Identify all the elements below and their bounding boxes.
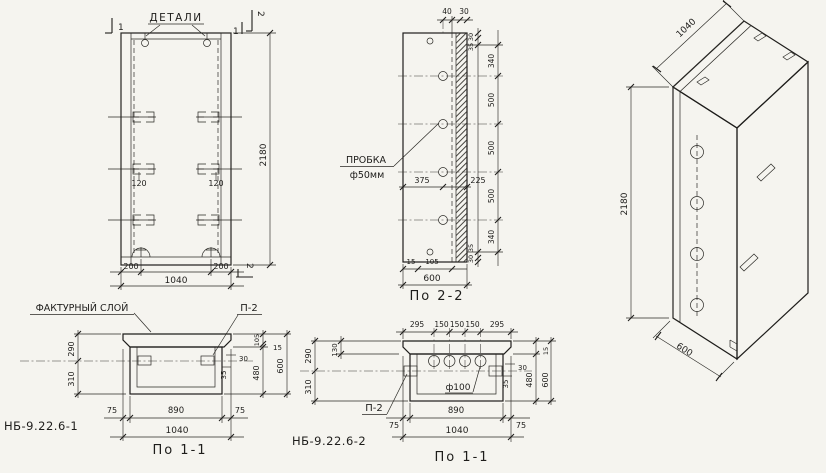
svg-text:15: 15 [273, 344, 282, 352]
p2-callout-2: П-2 [362, 374, 407, 415]
mark-2-label: НБ-9.22.6-2 [292, 434, 366, 448]
facing-slab [123, 334, 231, 347]
cut-mark-1-right: 1 [233, 22, 242, 37]
section-2-view: 295 150 150 150 295 290 310 130 30 35 48… [292, 320, 556, 465]
front-view: 120 120 ДЕТАЛИ 1 1 2 2 [105, 10, 276, 290]
lifting-hook-icon [142, 33, 211, 47]
anchor-brackets [108, 112, 242, 225]
bottom-loops [132, 247, 220, 257]
svg-text:1040: 1040 [166, 426, 189, 436]
top-loop-mark [697, 77, 709, 85]
dim-15: 15 [407, 258, 416, 266]
svg-text:35: 35 [467, 43, 475, 51]
section-1-1-title: По 1-1 [152, 443, 207, 458]
svg-text:П-2: П-2 [365, 403, 383, 414]
svg-text:30: 30 [239, 355, 248, 363]
svg-text:150: 150 [450, 320, 465, 329]
svg-text:890: 890 [448, 406, 464, 416]
svg-text:500: 500 [487, 189, 496, 204]
svg-text:340: 340 [487, 54, 496, 69]
svg-text:1: 1 [233, 27, 239, 37]
svg-text:890: 890 [168, 406, 184, 416]
side-section-view: 40 30 30 35 35 30 340 500 500 500 340 37… [340, 7, 503, 304]
panel-drawing: 120 120 ДЕТАЛИ 1 1 2 2 [0, 0, 826, 473]
textured-layer-callout: ФАКТУРНЫЙ СЛОЙ [30, 302, 151, 332]
dim-375: 375 [414, 176, 429, 185]
svg-text:500: 500 [487, 93, 496, 108]
svg-text:480: 480 [252, 365, 261, 380]
dim-120-left: 120 [131, 179, 146, 188]
svg-text:15: 15 [542, 347, 550, 355]
svg-text:1: 1 [118, 23, 124, 33]
anchor-embed [201, 356, 214, 365]
anchor-embed [138, 356, 151, 365]
svg-text:30: 30 [518, 364, 527, 372]
svg-text:340: 340 [487, 230, 496, 245]
svg-text:30: 30 [467, 255, 475, 263]
facing-layer-edge-hatch [673, 87, 680, 322]
left-rib-hatch [121, 33, 131, 265]
svg-text:105: 105 [253, 334, 261, 346]
svg-text:295: 295 [490, 320, 505, 329]
svg-text:290: 290 [304, 348, 313, 363]
dim-2180: 2180 [259, 143, 269, 166]
anchor-mark-icon [757, 164, 775, 181]
svg-text:75: 75 [516, 421, 526, 430]
svg-text:480: 480 [525, 372, 534, 387]
svg-text:75: 75 [107, 406, 117, 415]
dim-225: 225 [470, 176, 485, 185]
svg-text:1040: 1040 [446, 426, 469, 436]
iso-plug-holes [691, 135, 704, 318]
svg-text:2: 2 [244, 263, 254, 269]
svg-text:310: 310 [304, 379, 313, 394]
section-2-2-title: По 2-2 [409, 289, 464, 304]
svg-text:35: 35 [220, 371, 228, 380]
svg-text:35: 35 [502, 380, 510, 389]
dim-40: 40 [442, 7, 452, 16]
dim-600: 600 [423, 274, 440, 284]
dim-105: 105 [425, 258, 438, 266]
svg-text:30: 30 [467, 33, 475, 41]
bottom-notch [730, 340, 737, 351]
right-rib-hatch [221, 33, 231, 265]
iso-dim-1040: 1040 [675, 17, 699, 40]
cut-mark-1-left: 1 [105, 18, 124, 33]
svg-text:75: 75 [235, 406, 245, 415]
anchor-mark-icon [740, 254, 758, 271]
iso-dim-2180: 2180 [620, 192, 630, 215]
iso-dim-600: 600 [674, 341, 694, 359]
svg-text:310: 310 [67, 371, 76, 386]
dim-120-right: 120 [208, 179, 223, 188]
svg-text:500: 500 [487, 141, 496, 156]
dim-200-right: 200 [213, 262, 228, 271]
cut-mark-2-top: 2 [246, 10, 265, 31]
svg-text:ФАКТУРНЫЙ СЛОЙ: ФАКТУРНЫЙ СЛОЙ [36, 302, 129, 314]
details-label: ДЕТАЛИ [149, 12, 202, 24]
plug-label: ПРОБКА [346, 155, 387, 166]
plug-size-label: ф50мм [350, 170, 385, 181]
svg-text:35: 35 [467, 244, 475, 252]
svg-text:П-2: П-2 [240, 303, 258, 314]
facing-layer-hatch [456, 33, 467, 262]
section-1-view: 290 310 30 35 105 15 480 600 75 890 75 1… [4, 302, 291, 458]
svg-text:2: 2 [255, 11, 265, 17]
dim-1040: 1040 [165, 276, 188, 286]
svg-text:150: 150 [434, 320, 449, 329]
svg-text:295: 295 [410, 320, 425, 329]
drawing-sheet: 120 120 ДЕТАЛИ 1 1 2 2 [0, 0, 826, 473]
svg-text:ф100: ф100 [446, 383, 471, 393]
svg-text:150: 150 [465, 320, 480, 329]
svg-text:600: 600 [276, 358, 285, 373]
mark-1-label: НБ-9.22.6-1 [4, 419, 78, 433]
svg-text:290: 290 [67, 341, 76, 356]
dim-30-top: 30 [459, 7, 469, 16]
facing-slab [403, 341, 511, 354]
svg-text:130: 130 [331, 343, 339, 356]
svg-text:600: 600 [541, 372, 550, 387]
plug-callout: ПРОБКА ф50мм [340, 123, 439, 181]
isometric-view: 1040 2180 600 [620, 0, 808, 381]
svg-text:75: 75 [389, 421, 399, 430]
dim-200-left: 200 [123, 262, 138, 271]
section-1-1-title: По 1-1 [434, 450, 489, 465]
